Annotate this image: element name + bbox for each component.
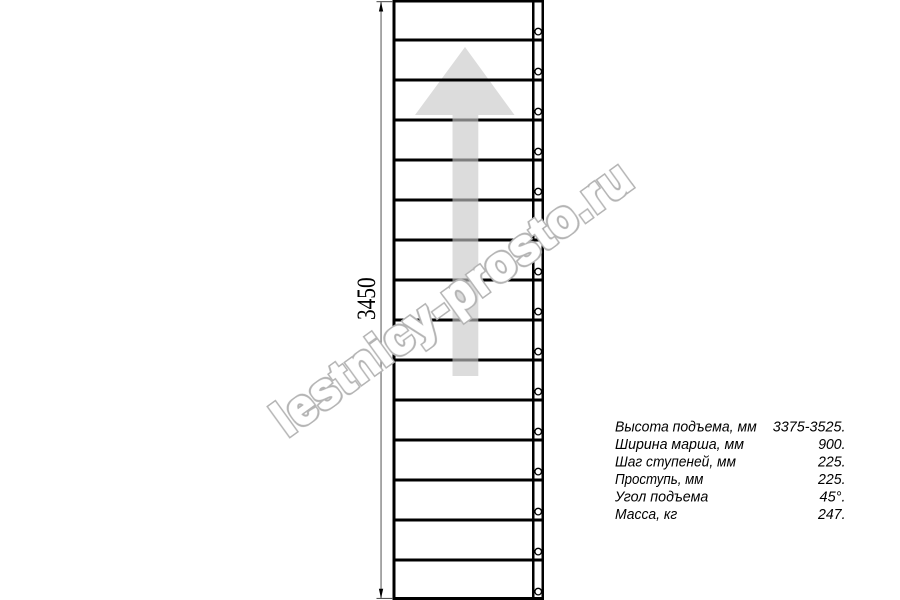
svg-text:Масса, кг: Масса, кг — [615, 506, 678, 523]
svg-text:Угол подъема: Угол подъема — [614, 489, 708, 506]
svg-text:247.: 247. — [817, 506, 845, 523]
svg-text:225.: 225. — [817, 454, 845, 471]
svg-text:3375-3525.: 3375-3525. — [773, 419, 846, 436]
svg-text:Проступь, мм: Проступь, мм — [615, 471, 703, 488]
svg-text:Шаг ступеней, мм: Шаг ступеней, мм — [615, 454, 736, 471]
svg-text:900.: 900. — [818, 436, 845, 453]
svg-text:Ширина марша, мм: Ширина марша, мм — [615, 436, 744, 453]
svg-text:225.: 225. — [817, 471, 845, 488]
svg-text:3450: 3450 — [353, 277, 381, 320]
svg-text:45°.: 45°. — [820, 489, 846, 506]
svg-text:Высота подъема, мм: Высота подъема, мм — [615, 419, 757, 436]
